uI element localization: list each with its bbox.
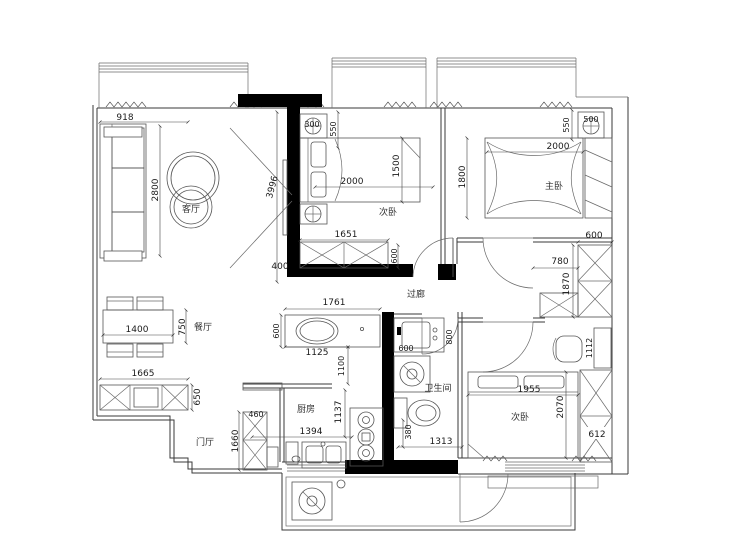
room-label-bath: 卫生间 [424, 382, 451, 394]
dim-kit-depth: 1137 [334, 401, 344, 424]
dim-bath-toilet: 380 [404, 424, 413, 439]
toilet [394, 398, 440, 428]
dim-m-nightstand-w: 500 [583, 115, 598, 124]
room-label-master: 主卧 [545, 180, 563, 192]
dim-m-closet-h: 1870 [562, 272, 572, 295]
dim-m-bed-wid: 1800 [458, 165, 468, 188]
sofa [100, 124, 146, 261]
dim-hall-pass: 1100 [337, 356, 346, 376]
entry-cabinet [243, 383, 282, 470]
coffee-tables [167, 152, 219, 228]
dim-kit-counter: 1394 [300, 427, 323, 437]
dim-wall-offset: 400 [271, 262, 288, 272]
dim-m-bed-len: 2000 [547, 142, 570, 152]
room-label-bed3: 次卧 [511, 411, 529, 423]
tv-unit [230, 128, 292, 268]
room-label-bed1: 次卧 [379, 206, 397, 218]
door-balcony [460, 474, 508, 522]
dim-b1-door: 600 [390, 248, 399, 263]
room-label-living: 客厅 [182, 203, 200, 215]
dim-b3-bed-l: 1955 [518, 385, 541, 395]
dim-b1-wardrobe: 1651 [335, 230, 358, 240]
dim-ent-cab-h: 1660 [231, 429, 241, 452]
dim-b1-bed-len: 2000 [341, 177, 364, 187]
dim-din-cab-l: 1665 [132, 369, 155, 379]
dim-hall-basin: 1125 [306, 348, 329, 358]
dim-bath-sink-l: 800 [445, 329, 454, 344]
dim-m-nightstand: 550 [562, 117, 571, 132]
dim-b1-nightstand: 550 [329, 121, 338, 136]
dim-hall-len: 1761 [323, 298, 346, 308]
dim-m-closet-w: 600 [585, 231, 602, 241]
dim-ent-cab-w: 460 [248, 410, 263, 419]
floor-plan-drawing: 客厅 次卧 主卧 过廊 餐厅 门厅 厨房 卫生间 次卧 918 400 300 … [0, 0, 740, 555]
dim-din-table-l: 1400 [126, 325, 149, 335]
dining-cabinet [100, 385, 188, 410]
bay-window-living [99, 63, 248, 108]
floor-plan-page: 客厅 次卧 主卧 过廊 餐厅 门厅 厨房 卫生间 次卧 918 400 300 … [0, 0, 740, 555]
dim-din-cab-w: 650 [193, 388, 203, 405]
room-label-hall: 过廊 [407, 288, 425, 300]
dimension-lines [100, 110, 612, 470]
door-bed3 [483, 322, 533, 372]
dim-b1-bed-wid: 1500 [392, 154, 402, 177]
dim-m-closet-off: 780 [551, 257, 568, 267]
dim-bath-sink-w: 600 [398, 344, 413, 353]
hall-basin-counter [285, 315, 380, 347]
dim-hall-counter: 600 [272, 323, 281, 338]
dim-sofa-wall: 2800 [151, 178, 161, 201]
dim-bath-width: 1313 [430, 437, 453, 447]
dim-b1-niche: 300 [304, 120, 319, 129]
dim-b3-desk: 1112 [585, 338, 594, 358]
dim-living-length: 3996 [265, 175, 281, 200]
dim-din-table-w: 750 [178, 318, 188, 335]
bay-window-bed1 [332, 58, 426, 108]
dim-b3-wardrobe: 612 [588, 430, 605, 440]
balcony-washing-machine [292, 480, 345, 520]
room-label-dining: 餐厅 [194, 321, 212, 333]
room-label-kitchen: 厨房 [297, 403, 315, 415]
dim-living-width: 918 [116, 113, 133, 123]
bay-window-master [437, 58, 628, 108]
door-master [483, 238, 533, 288]
room-label-entry: 门厅 [196, 436, 214, 448]
dim-b3-bed-w: 2070 [556, 395, 566, 418]
